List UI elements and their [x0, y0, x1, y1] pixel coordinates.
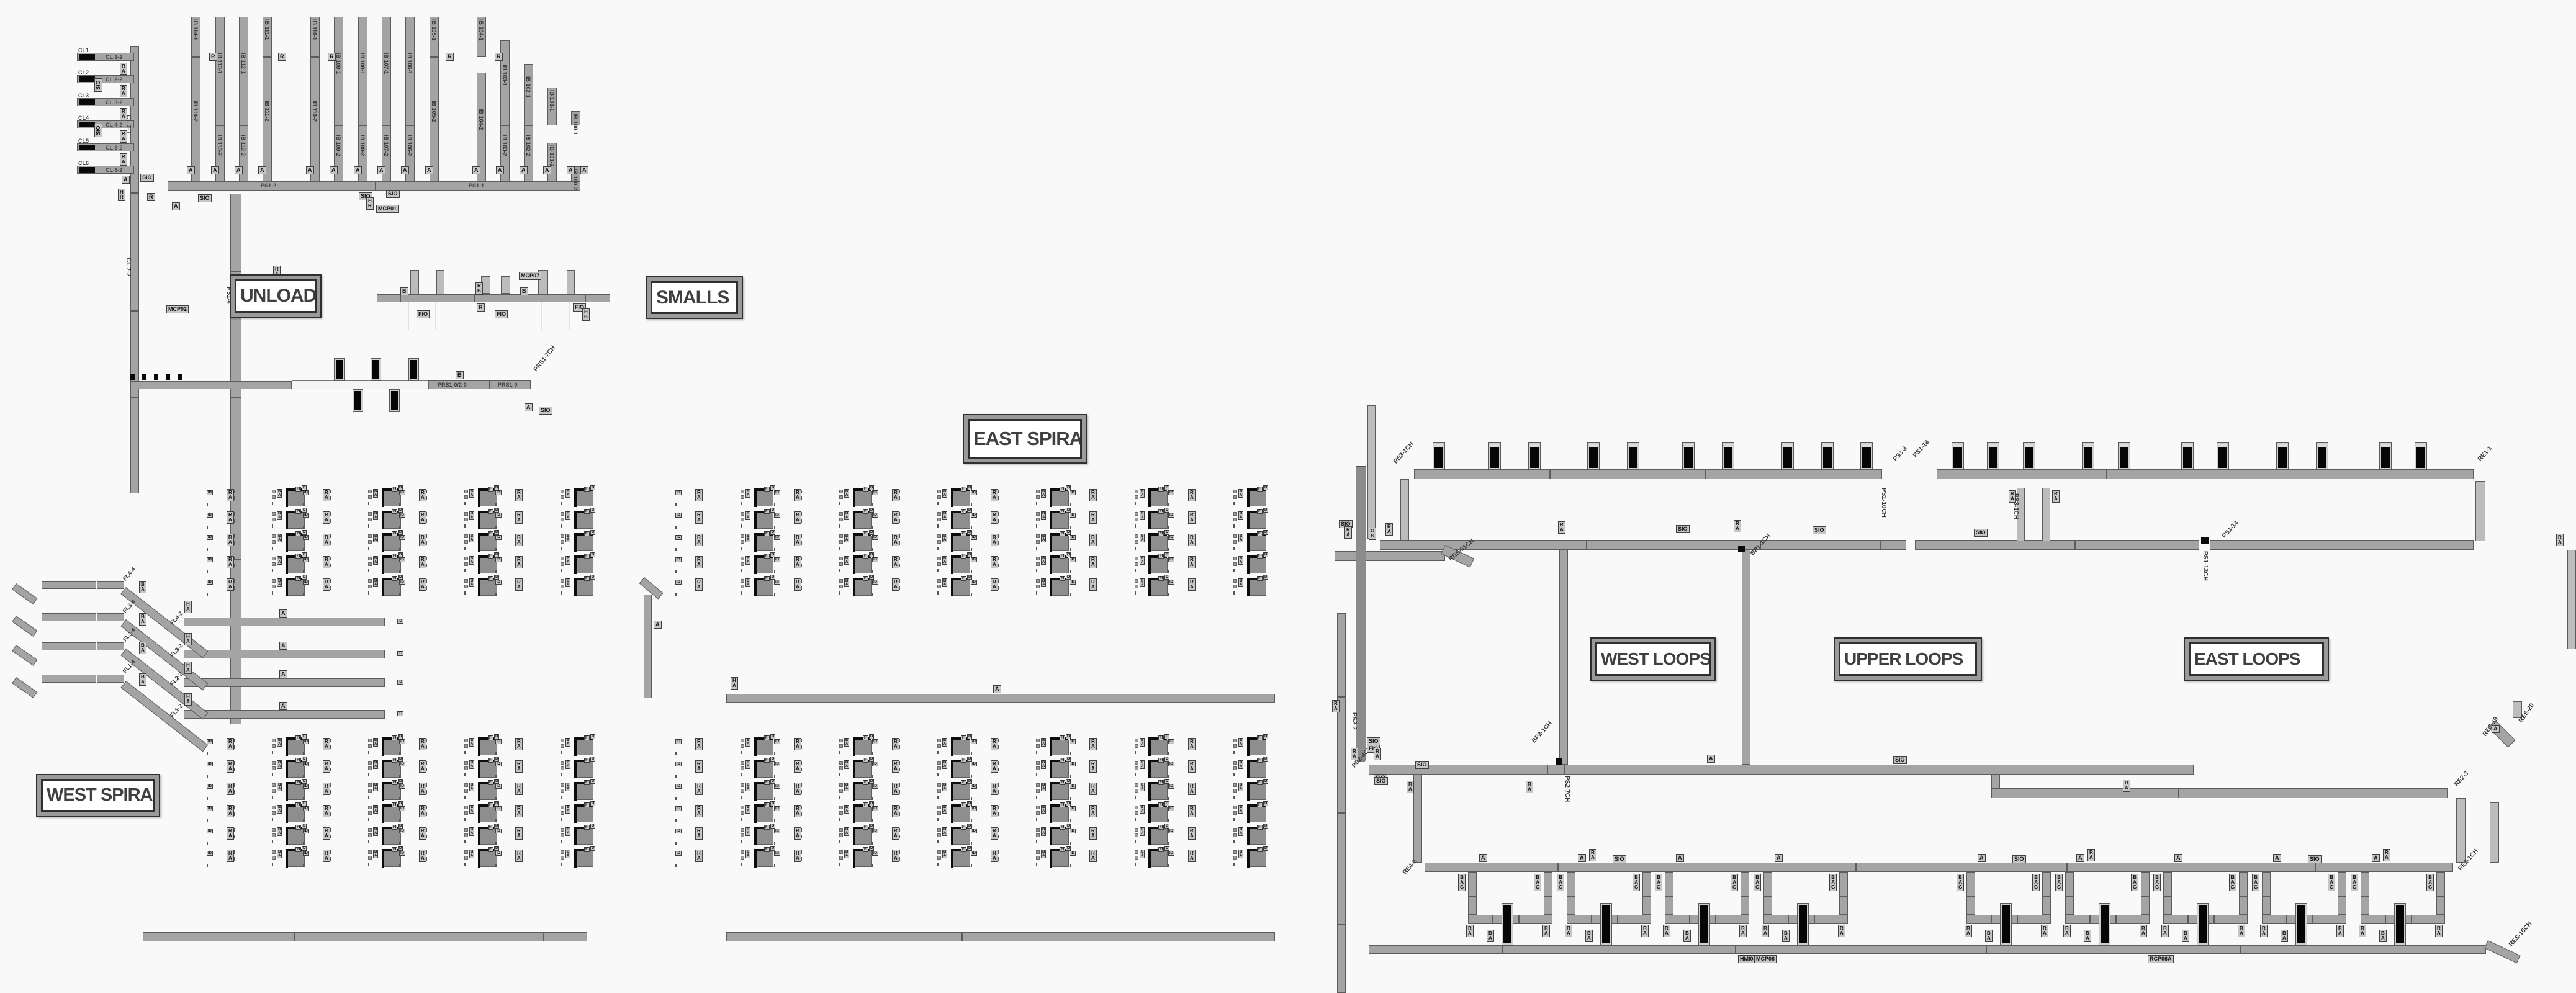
- xray-machine[interactable]: [1952, 443, 1963, 469]
- conveyor-segment[interactable]: [1742, 550, 1750, 765]
- chute[interactable]: [480, 491, 497, 506]
- chute[interactable]: [1151, 536, 1168, 551]
- chute[interactable]: [480, 558, 497, 573]
- conveyor-segment[interactable]: [2315, 863, 2453, 872]
- chute[interactable]: [855, 829, 872, 845]
- zone-sign-west-spiral[interactable]: WEST SPIRAL: [36, 774, 160, 817]
- xray-machine[interactable]: [1723, 443, 1734, 469]
- xray-machine[interactable]: [1529, 443, 1540, 469]
- loop-vertical[interactable]: [2436, 872, 2445, 897]
- chute[interactable]: [577, 784, 593, 800]
- chute[interactable]: [480, 580, 497, 596]
- loop-bottom[interactable]: [1966, 915, 1991, 924]
- loop-vertical[interactable]: [1468, 897, 1477, 915]
- conveyor-segment[interactable]: [585, 294, 610, 302]
- infeed-machine[interactable]: [371, 359, 381, 380]
- conveyor-segment[interactable]: [2042, 488, 2050, 541]
- loop-machine[interactable]: [2099, 904, 2110, 945]
- tag-ba: B A: [469, 783, 474, 791]
- conveyor-segment[interactable]: [42, 675, 96, 683]
- chute[interactable]: [1151, 851, 1168, 867]
- chute[interactable]: [480, 829, 497, 845]
- chute[interactable]: [577, 807, 593, 822]
- xray-machine[interactable]: [1861, 443, 1872, 469]
- chute[interactable]: [953, 580, 970, 596]
- loop-vertical[interactable]: [2338, 897, 2346, 915]
- chute[interactable]: [384, 558, 401, 573]
- grid-square: [937, 833, 941, 837]
- loop-machine[interactable]: [2197, 904, 2208, 945]
- chute[interactable]: [577, 762, 593, 778]
- chute[interactable]: [1250, 558, 1266, 573]
- chute[interactable]: [480, 740, 497, 755]
- conveyor-segment[interactable]: [184, 650, 385, 658]
- loop-bottom[interactable]: [2065, 915, 2090, 924]
- conveyor-diagonal[interactable]: [12, 616, 37, 637]
- chute[interactable]: [480, 762, 497, 778]
- conveyor-segment[interactable]: [1760, 540, 1881, 550]
- tag-ra: R A: [323, 578, 330, 591]
- chute[interactable]: [288, 807, 305, 822]
- chute[interactable]: [757, 851, 773, 867]
- xray-machine[interactable]: [2415, 443, 2426, 469]
- loop-bottom[interactable]: [2116, 915, 2150, 924]
- chute[interactable]: [577, 513, 593, 529]
- chute[interactable]: [1052, 784, 1069, 800]
- chute[interactable]: [384, 740, 401, 755]
- loop-vertical[interactable]: [1665, 872, 1673, 897]
- loop-vertical[interactable]: [2042, 872, 2051, 897]
- chute[interactable]: [1052, 762, 1069, 778]
- chute[interactable]: [757, 762, 773, 778]
- conveyor-segment[interactable]: [143, 932, 295, 941]
- conveyor-segment[interactable]: [1705, 469, 1882, 479]
- chute[interactable]: [577, 580, 593, 596]
- infeed-machine[interactable]: [390, 390, 399, 411]
- chute[interactable]: [953, 558, 970, 573]
- chute[interactable]: [384, 807, 401, 822]
- loop-vertical[interactable]: [1468, 872, 1477, 897]
- chute[interactable]: [855, 536, 872, 551]
- chute[interactable]: [1052, 740, 1069, 755]
- chute[interactable]: [1250, 740, 1266, 755]
- grid-square: [839, 739, 843, 742]
- loop-vertical[interactable]: [1763, 872, 1772, 897]
- loop-vertical[interactable]: [2262, 872, 2271, 897]
- conveyor-segment[interactable]: [97, 642, 124, 650]
- conveyor-segment[interactable]: [1337, 925, 1346, 993]
- loop-machine[interactable]: [1502, 904, 1513, 945]
- chute[interactable]: [577, 491, 593, 506]
- chute[interactable]: [288, 558, 305, 573]
- conveyor-segment[interactable]: [1413, 775, 1422, 863]
- chute[interactable]: [480, 807, 497, 822]
- chute[interactable]: [384, 829, 401, 845]
- chute[interactable]: [1250, 580, 1266, 596]
- chute[interactable]: [757, 558, 773, 573]
- chute[interactable]: [577, 829, 593, 845]
- loop-vertical[interactable]: [1839, 872, 1848, 897]
- chute[interactable]: [1250, 829, 1266, 845]
- loop-vertical[interactable]: [1642, 897, 1651, 915]
- conveyor-segment[interactable]: [644, 595, 652, 698]
- conveyor-segment[interactable]: [292, 380, 428, 389]
- chute[interactable]: [480, 851, 497, 867]
- conveyor-segment[interactable]: [436, 270, 444, 294]
- chute[interactable]: [757, 491, 773, 506]
- loop-bottom[interactable]: [1468, 915, 1493, 924]
- chute[interactable]: [1052, 807, 1069, 822]
- zone-sign-east-spiral[interactable]: EAST SPIRAL: [963, 414, 1087, 464]
- chute[interactable]: [757, 829, 773, 845]
- loop-bottom[interactable]: [1716, 915, 1749, 924]
- loop-vertical[interactable]: [2065, 872, 2074, 897]
- chute[interactable]: [1052, 491, 1069, 506]
- chute[interactable]: [577, 851, 593, 867]
- tag-bag: B A G: [1731, 874, 1738, 891]
- chute[interactable]: [288, 851, 305, 867]
- loop-vertical[interactable]: [1839, 897, 1848, 915]
- xray-machine[interactable]: [2024, 443, 2035, 469]
- conveyor-segment[interactable]: [377, 294, 400, 302]
- conveyor-segment[interactable]: [1400, 479, 1409, 541]
- conveyor-segment[interactable]: [184, 678, 385, 687]
- conveyor-segment[interactable]: [230, 194, 241, 272]
- tag-sio: SIO: [1613, 855, 1626, 863]
- chute[interactable]: [288, 740, 305, 755]
- conveyor-segment[interactable]: [2075, 540, 2199, 550]
- conveyor-segment[interactable]: [1881, 540, 1906, 550]
- loop-vertical[interactable]: [2239, 872, 2248, 897]
- conveyor-segment[interactable]: [184, 710, 385, 719]
- conveyor-segment[interactable]: [97, 613, 124, 621]
- conveyor-segment[interactable]: [295, 932, 543, 941]
- chute[interactable]: [1052, 829, 1069, 845]
- chute[interactable]: [1052, 851, 1069, 867]
- chute[interactable]: [855, 491, 872, 506]
- chute[interactable]: [1052, 536, 1069, 551]
- conveyor-segment[interactable]: [1414, 469, 1550, 479]
- conveyor-segment[interactable]: [1937, 469, 2107, 479]
- conveyor-diagonal[interactable]: [12, 677, 37, 698]
- loop-vertical[interactable]: [1665, 897, 1673, 915]
- loop-vertical[interactable]: [2239, 897, 2248, 915]
- loop-machine[interactable]: [1699, 904, 1709, 945]
- loop-vertical[interactable]: [1966, 872, 1975, 897]
- chute[interactable]: [384, 491, 401, 506]
- conveyor-segment[interactable]: [97, 581, 124, 589]
- chute[interactable]: [384, 851, 401, 867]
- conveyor-diagonal[interactable]: [12, 645, 37, 666]
- conveyor-segment[interactable]: [42, 613, 96, 621]
- loop-bottom[interactable]: [2313, 915, 2346, 924]
- loop-machine[interactable]: [2395, 904, 2405, 945]
- zone-sign-upper-loops[interactable]: UPPER LOOPS: [1834, 637, 1982, 681]
- conveyor-segment[interactable]: [567, 270, 575, 294]
- chute[interactable]: [1250, 851, 1266, 867]
- chute[interactable]: [1250, 491, 1266, 506]
- chute[interactable]: [288, 580, 305, 596]
- loop-vertical[interactable]: [2163, 897, 2172, 915]
- loop-bottom[interactable]: [2412, 915, 2445, 924]
- chute[interactable]: [855, 851, 872, 867]
- loop-vertical[interactable]: [2262, 897, 2271, 915]
- conveyor-segment[interactable]: [1550, 469, 1705, 479]
- loop-vertical[interactable]: [2361, 872, 2369, 897]
- machine-cap: [2183, 444, 2192, 447]
- chute[interactable]: [288, 536, 305, 551]
- chute[interactable]: [480, 536, 497, 551]
- chute[interactable]: [953, 762, 970, 778]
- chute[interactable]: [855, 784, 872, 800]
- chute[interactable]: [1250, 784, 1266, 800]
- conveyor-segment[interactable]: [97, 675, 124, 683]
- loop-machine[interactable]: [2001, 904, 2011, 945]
- chute[interactable]: [953, 829, 970, 845]
- loop-vertical[interactable]: [1741, 897, 1749, 915]
- loop-vertical[interactable]: [1966, 897, 1975, 915]
- conveyor-segment[interactable]: [1369, 945, 1503, 954]
- conveyor-segment[interactable]: [130, 193, 139, 311]
- loop-vertical[interactable]: [2042, 897, 2051, 915]
- chute[interactable]: [757, 784, 773, 800]
- conveyor-segment[interactable]: [1991, 775, 2000, 789]
- conveyor-segment[interactable]: [130, 398, 139, 493]
- loop-vertical[interactable]: [1567, 872, 1575, 897]
- conveyor-segment[interactable]: [1425, 863, 1558, 872]
- conveyor-segment[interactable]: [1335, 551, 1445, 561]
- xray-machine[interactable]: [2217, 443, 2228, 469]
- chute[interactable]: [757, 807, 773, 822]
- conveyor-segment[interactable]: [726, 932, 962, 941]
- chute[interactable]: [288, 829, 305, 845]
- chute[interactable]: [1250, 762, 1266, 778]
- conveyor-segment[interactable]: [2210, 540, 2474, 550]
- chute[interactable]: [384, 580, 401, 596]
- chute[interactable]: [855, 762, 872, 778]
- chute[interactable]: [1052, 513, 1069, 529]
- tag-fid: D: [302, 824, 307, 829]
- loop-machine[interactable]: [2296, 904, 2307, 945]
- tag-ba: B A: [1140, 511, 1145, 520]
- xray-machine[interactable]: [1822, 443, 1833, 469]
- xray-machine[interactable]: [1628, 443, 1639, 469]
- xray-machine[interactable]: [1433, 443, 1444, 469]
- conveyor-segment[interactable]: [501, 276, 510, 294]
- chute[interactable]: [1151, 740, 1168, 755]
- chute[interactable]: [855, 513, 872, 529]
- chute[interactable]: [1052, 558, 1069, 573]
- conveyor-segment[interactable]: [1587, 540, 1760, 550]
- loop-bottom[interactable]: [1763, 915, 1788, 924]
- chute[interactable]: [1151, 491, 1168, 506]
- loop-bottom[interactable]: [2262, 915, 2287, 924]
- conveyor-segment[interactable]: [184, 618, 385, 626]
- conveyor-segment[interactable]: [726, 694, 1275, 703]
- conveyor-segment[interactable]: [962, 932, 1275, 941]
- loop-bottom[interactable]: [2361, 915, 2385, 924]
- chute[interactable]: [384, 762, 401, 778]
- loop-bottom[interactable]: [1618, 915, 1651, 924]
- loop-vertical[interactable]: [1567, 897, 1575, 915]
- loop-vertical[interactable]: [2436, 897, 2445, 915]
- xray-machine[interactable]: [2277, 443, 2288, 469]
- xray-machine[interactable]: [2317, 443, 2328, 469]
- loop-bottom[interactable]: [2214, 915, 2248, 924]
- conveyor-segment[interactable]: [42, 642, 96, 650]
- conveyor-segment[interactable]: [1503, 945, 1736, 954]
- chute[interactable]: [288, 513, 305, 529]
- loop-vertical[interactable]: [1642, 872, 1651, 897]
- chute[interactable]: [953, 851, 970, 867]
- tag-ra: R A: [695, 578, 703, 591]
- chute[interactable]: [384, 513, 401, 529]
- loop-bottom[interactable]: [2163, 915, 2188, 924]
- chute[interactable]: [1151, 762, 1168, 778]
- chute[interactable]: [757, 740, 773, 755]
- xray-machine[interactable]: [2119, 443, 2130, 469]
- chute[interactable]: [953, 491, 970, 506]
- chute[interactable]: [757, 580, 773, 596]
- chute[interactable]: [1151, 580, 1168, 596]
- conveyor-segment[interactable]: [1380, 540, 1587, 550]
- chute[interactable]: [757, 536, 773, 551]
- conveyor-segment[interactable]: [475, 294, 585, 302]
- conveyor-segment[interactable]: [1559, 550, 1568, 765]
- chute[interactable]: [1151, 829, 1168, 845]
- tag-fid: FI: [392, 780, 397, 785]
- conveyor-segment[interactable]: [2456, 798, 2466, 863]
- chute[interactable]: [1151, 558, 1168, 573]
- conveyor-segment[interactable]: [2475, 481, 2485, 541]
- chute[interactable]: [953, 784, 970, 800]
- chute[interactable]: [953, 740, 970, 755]
- xray-machine[interactable]: [2182, 443, 2193, 469]
- chute[interactable]: [480, 784, 497, 800]
- chute[interactable]: [855, 740, 872, 755]
- loop-vertical[interactable]: [1741, 872, 1749, 897]
- chute[interactable]: [1151, 513, 1168, 529]
- chute[interactable]: [1052, 580, 1069, 596]
- loop-vertical[interactable]: [2361, 897, 2369, 915]
- chute[interactable]: [1151, 807, 1168, 822]
- chute[interactable]: [953, 807, 970, 822]
- conveyor-segment[interactable]: [1991, 788, 2179, 798]
- xray-machine[interactable]: [1782, 443, 1793, 469]
- tag-ba: B A: [565, 827, 570, 836]
- loop-vertical[interactable]: [2141, 897, 2150, 915]
- chute[interactable]: [577, 740, 593, 755]
- chute[interactable]: [384, 784, 401, 800]
- conveyor-segment[interactable]: [400, 294, 475, 302]
- chute[interactable]: [1250, 513, 1266, 529]
- chute[interactable]: [855, 580, 872, 596]
- loop-machine[interactable]: [1798, 904, 1808, 945]
- xray-machine[interactable]: [1988, 443, 1999, 469]
- chute[interactable]: [1151, 784, 1168, 800]
- loop-bottom[interactable]: [1665, 915, 1690, 924]
- loop-bottom[interactable]: [1814, 915, 1848, 924]
- conveyor-segment[interactable]: [1915, 540, 2075, 550]
- chute[interactable]: [288, 784, 305, 800]
- xray-machine[interactable]: [1588, 443, 1599, 469]
- chute[interactable]: [1250, 807, 1266, 822]
- loop-vertical[interactable]: [1544, 872, 1552, 897]
- conveyor-segment[interactable]: [2179, 788, 2448, 798]
- zone-sign-smalls[interactable]: SMALLS: [646, 276, 743, 319]
- conveyor-segment[interactable]: [1369, 765, 1547, 775]
- infeed-machine[interactable]: [409, 359, 418, 380]
- machine-cap: [2416, 444, 2425, 447]
- conveyor-segment[interactable]: [130, 381, 292, 389]
- loop-vertical[interactable]: [2338, 872, 2346, 897]
- chute[interactable]: [577, 536, 593, 551]
- chute[interactable]: [577, 558, 593, 573]
- conveyor-segment[interactable]: [1337, 697, 1346, 813]
- conveyor-segment[interactable]: [1558, 863, 1856, 872]
- conveyor-segment[interactable]: [2107, 469, 2474, 479]
- loop-machine[interactable]: [1601, 904, 1611, 945]
- zone-sign-west-loops[interactable]: WEST LOOPS: [1590, 637, 1716, 681]
- conveyor-segment[interactable]: [1736, 945, 1986, 954]
- conveyor-segment[interactable]: [42, 581, 96, 589]
- conveyor-segment[interactable]: [1337, 813, 1346, 925]
- infeed-machine[interactable]: [353, 390, 363, 411]
- loop-bottom[interactable]: [1519, 915, 1552, 924]
- chute[interactable]: [953, 536, 970, 551]
- loop-vertical[interactable]: [2163, 872, 2172, 897]
- conveyor-diagonal[interactable]: [12, 583, 37, 604]
- xray-machine[interactable]: [1683, 443, 1694, 469]
- conveyor-segment[interactable]: [1337, 613, 1346, 697]
- conveyor-segment[interactable]: [543, 932, 587, 941]
- loop-vertical[interactable]: [2141, 872, 2150, 897]
- conveyor-segment[interactable]: [1986, 945, 2241, 954]
- xray-machine[interactable]: [2083, 443, 2094, 469]
- loop-vertical[interactable]: [2065, 897, 2074, 915]
- conveyor-segment[interactable]: [2567, 550, 2576, 649]
- conveyor-segment[interactable]: [1564, 765, 2194, 775]
- chute[interactable]: [480, 513, 497, 529]
- conveyor-segment[interactable]: [2241, 945, 2486, 954]
- loop-vertical[interactable]: [1763, 897, 1772, 915]
- conveyor-segment[interactable]: [1547, 765, 1564, 775]
- chute[interactable]: [288, 491, 305, 506]
- chute[interactable]: [288, 762, 305, 778]
- conveyor-segment[interactable]: [1367, 405, 1376, 539]
- chute[interactable]: [757, 513, 773, 529]
- chute[interactable]: [1250, 536, 1266, 551]
- chute[interactable]: [384, 536, 401, 551]
- xray-machine[interactable]: [1489, 443, 1500, 469]
- chute[interactable]: [855, 558, 872, 573]
- chute[interactable]: [953, 513, 970, 529]
- zone-sign-unload[interactable]: UNLOAD: [230, 274, 322, 318]
- xray-machine[interactable]: [2380, 443, 2391, 469]
- tag-fid: FI: [764, 825, 770, 830]
- conveyor-segment[interactable]: [2067, 863, 2315, 872]
- chute[interactable]: [855, 807, 872, 822]
- zone-sign-east-loops[interactable]: EAST LOOPS: [2184, 637, 2329, 681]
- loop-bottom[interactable]: [2017, 915, 2051, 924]
- conveyor-segment[interactable]: [1856, 863, 2067, 872]
- conveyor-label: PS2-7CH: [1564, 776, 1570, 802]
- infeed-machine[interactable]: [335, 359, 344, 380]
- loop-bottom[interactable]: [1567, 915, 1592, 924]
- conveyor-segment[interactable]: [2490, 802, 2499, 863]
- conveyor-segment[interactable]: [410, 270, 419, 294]
- loop-vertical[interactable]: [1544, 897, 1552, 915]
